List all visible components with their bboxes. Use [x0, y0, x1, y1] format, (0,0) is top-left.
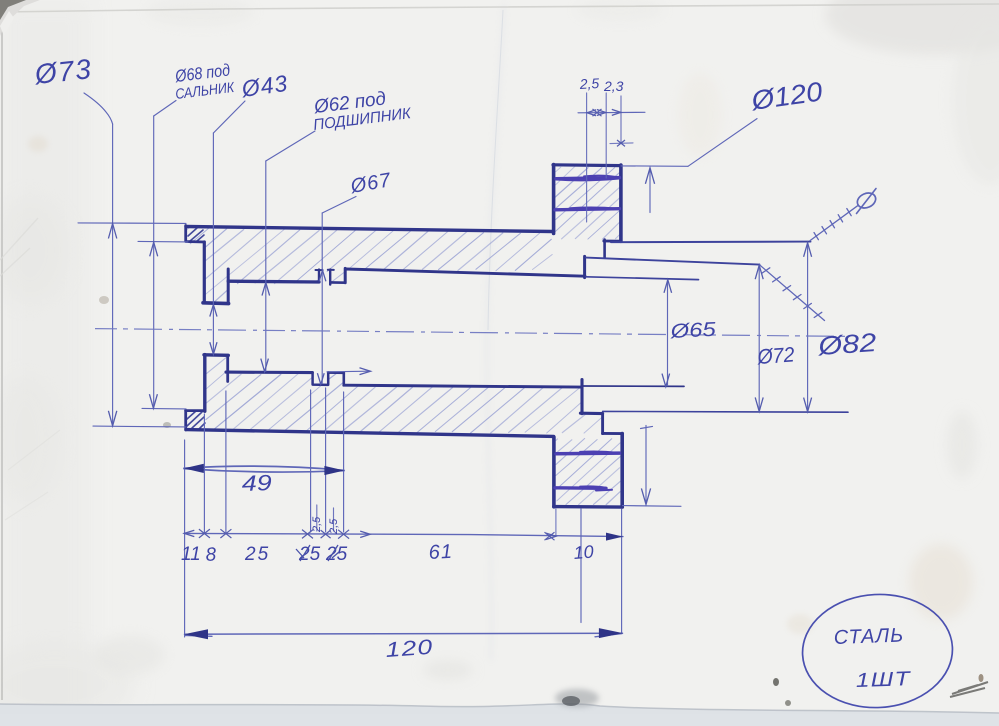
- svg-text:СТАЛЬ: СТАЛЬ: [833, 625, 904, 649]
- svg-text:25: 25: [244, 544, 270, 565]
- svg-text:49: 49: [241, 470, 272, 496]
- svg-text:2,3: 2,3: [603, 78, 624, 94]
- svg-text:10: 10: [573, 542, 594, 563]
- svg-text:Ø65: Ø65: [669, 319, 717, 343]
- svg-text:Ø72: Ø72: [756, 343, 796, 369]
- svg-text:2,5: 2,5: [311, 516, 323, 533]
- svg-text:Ø73: Ø73: [32, 53, 93, 90]
- svg-text:2,5: 2,5: [578, 75, 599, 92]
- svg-text:61: 61: [428, 541, 453, 564]
- svg-text:1ШТ: 1ШТ: [855, 668, 912, 692]
- svg-text:120: 120: [385, 636, 434, 662]
- svg-text:2,5: 2,5: [328, 518, 340, 535]
- svg-text:8: 8: [205, 544, 217, 566]
- svg-text:Ø82: Ø82: [816, 327, 878, 361]
- svg-text:11: 11: [181, 544, 201, 565]
